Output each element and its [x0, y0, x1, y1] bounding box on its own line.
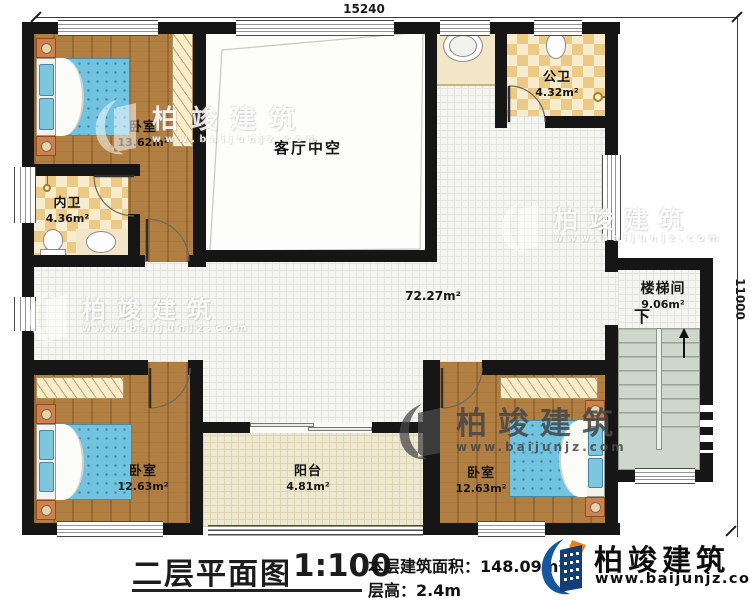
vanity-sink-basin	[449, 35, 477, 57]
room-label-balcony: 阳台 4.81m²	[268, 464, 348, 493]
balcony-railing	[208, 525, 423, 536]
room-area: 72.27m²	[405, 289, 461, 303]
room-name: 阳台	[268, 464, 348, 480]
dimension-right-value: 11000	[733, 271, 747, 327]
room-name: 客厅中空	[274, 139, 342, 157]
room-label-bedroom-bl: 卧室 12.63m²	[103, 464, 183, 493]
bed-pillow	[39, 462, 54, 492]
room-label-living-void: 客厅中空	[238, 139, 378, 157]
window	[534, 20, 582, 36]
window	[440, 20, 490, 36]
floor-height-label: 层高：	[368, 581, 416, 600]
stair-stringer	[656, 328, 662, 450]
wall-bedroom-bl-right	[190, 360, 203, 535]
nightstand-knob	[590, 502, 601, 513]
dimension-tick	[725, 525, 736, 536]
floor-area-label: 本层建筑面积：	[368, 557, 480, 576]
room-label-bedroom-br: 卧室 12.63m²	[441, 466, 521, 495]
stair-flight-left	[618, 328, 656, 440]
nightstand	[585, 400, 605, 420]
room-label-hallway: 72.27m²	[393, 289, 473, 303]
plan-title: 二层平面图	[132, 549, 292, 593]
wardrobe	[500, 377, 598, 399]
wall-stairwell-top	[605, 258, 713, 270]
floor-height-value: 2.4m	[416, 581, 461, 600]
floor-plan-canvas: 卧室 13.62m² 内卫 4.36m² 客厅中空 公卫 4.32m² 72.2…	[0, 0, 750, 600]
bed-pillow	[39, 98, 54, 130]
window	[236, 20, 394, 36]
company-website: www.baijunjz.com	[595, 571, 750, 587]
nightstand-knob	[590, 405, 601, 416]
wall-bedroom-bl-top	[22, 360, 148, 375]
room-area: 4.36m²	[30, 212, 105, 225]
bed-pillow	[588, 458, 603, 488]
ceiling-light	[43, 184, 51, 192]
wall-bedroom-br-left	[423, 360, 440, 535]
stair-flight-right	[662, 328, 700, 440]
room-name: 内卫	[30, 196, 105, 212]
toilet-bowl	[43, 229, 63, 251]
wall-inner-bath-top	[22, 164, 140, 176]
room-name: 卧室	[103, 120, 183, 136]
stair-direction-line	[683, 337, 685, 358]
nightstand	[36, 500, 56, 520]
room-label-public-bath: 公卫 4.32m²	[517, 70, 597, 99]
vanity-edge	[437, 84, 495, 86]
stair-down-label: 下	[630, 307, 654, 326]
nightstand-knob	[41, 43, 52, 54]
sliding-door-leaf	[250, 423, 314, 427]
dimension-line-top	[35, 17, 737, 18]
bed-pillow	[39, 430, 54, 460]
nightstand	[36, 136, 56, 156]
wall-balcony-top	[372, 422, 438, 433]
room-area: 4.81m²	[268, 480, 348, 493]
wall-left	[22, 22, 34, 535]
stairwell-window-strip	[700, 397, 713, 453]
room-name: 卧室	[103, 464, 183, 480]
stair-direction-arrow	[679, 328, 689, 338]
nightstand-knob	[41, 141, 52, 152]
room-area: 12.63m²	[103, 480, 183, 493]
wall-inner-bath-right	[128, 214, 140, 256]
title-underline	[132, 589, 362, 592]
room-label-inner-bath: 内卫 4.36m²	[30, 196, 105, 225]
toilet-bowl	[546, 33, 566, 59]
nightstand-knob	[41, 409, 52, 420]
nightstand	[36, 38, 56, 58]
room-name: 楼梯间	[623, 281, 703, 298]
room-area: 13.62m²	[103, 136, 183, 149]
room-name: 卧室	[441, 466, 521, 482]
bed-pillow	[39, 64, 54, 96]
room-label-bedroom-tl: 卧室 13.62m²	[103, 120, 183, 149]
window	[478, 521, 545, 537]
window	[602, 155, 621, 240]
wall-stairwell-left	[605, 325, 618, 535]
window	[57, 521, 163, 537]
wall-public-bath-bottom	[495, 116, 507, 128]
room-name: 公卫	[517, 70, 597, 86]
window	[635, 468, 695, 484]
nightstand-knob	[41, 505, 52, 516]
window	[58, 20, 158, 36]
bed-pillow	[588, 426, 603, 456]
wall-public-bath-left	[495, 22, 507, 128]
down-text: 下	[634, 307, 650, 326]
sliding-door-leaf	[308, 427, 372, 431]
sink	[86, 231, 116, 253]
wardrobe	[36, 377, 124, 399]
floor-height-text: 层高：2.4m	[368, 577, 461, 600]
nightstand	[36, 404, 56, 424]
dimension-top-value: 15240	[334, 2, 394, 16]
window	[14, 297, 36, 331]
wall-balcony-top	[203, 422, 250, 433]
room-area: 4.32m²	[517, 86, 597, 99]
company-logo-icon	[538, 536, 590, 596]
wall-bedroom-tl-bottom	[22, 255, 145, 267]
floor-area-text: 本层建筑面积：148.09m²	[368, 553, 565, 577]
wall-void-bottom	[193, 250, 437, 262]
wall-bedroom-br-top	[482, 360, 618, 375]
room-area: 12.63m²	[441, 482, 521, 495]
nightstand	[585, 497, 605, 517]
wall-bedroom-tl-right	[193, 22, 206, 262]
wall-void-right	[425, 22, 437, 262]
